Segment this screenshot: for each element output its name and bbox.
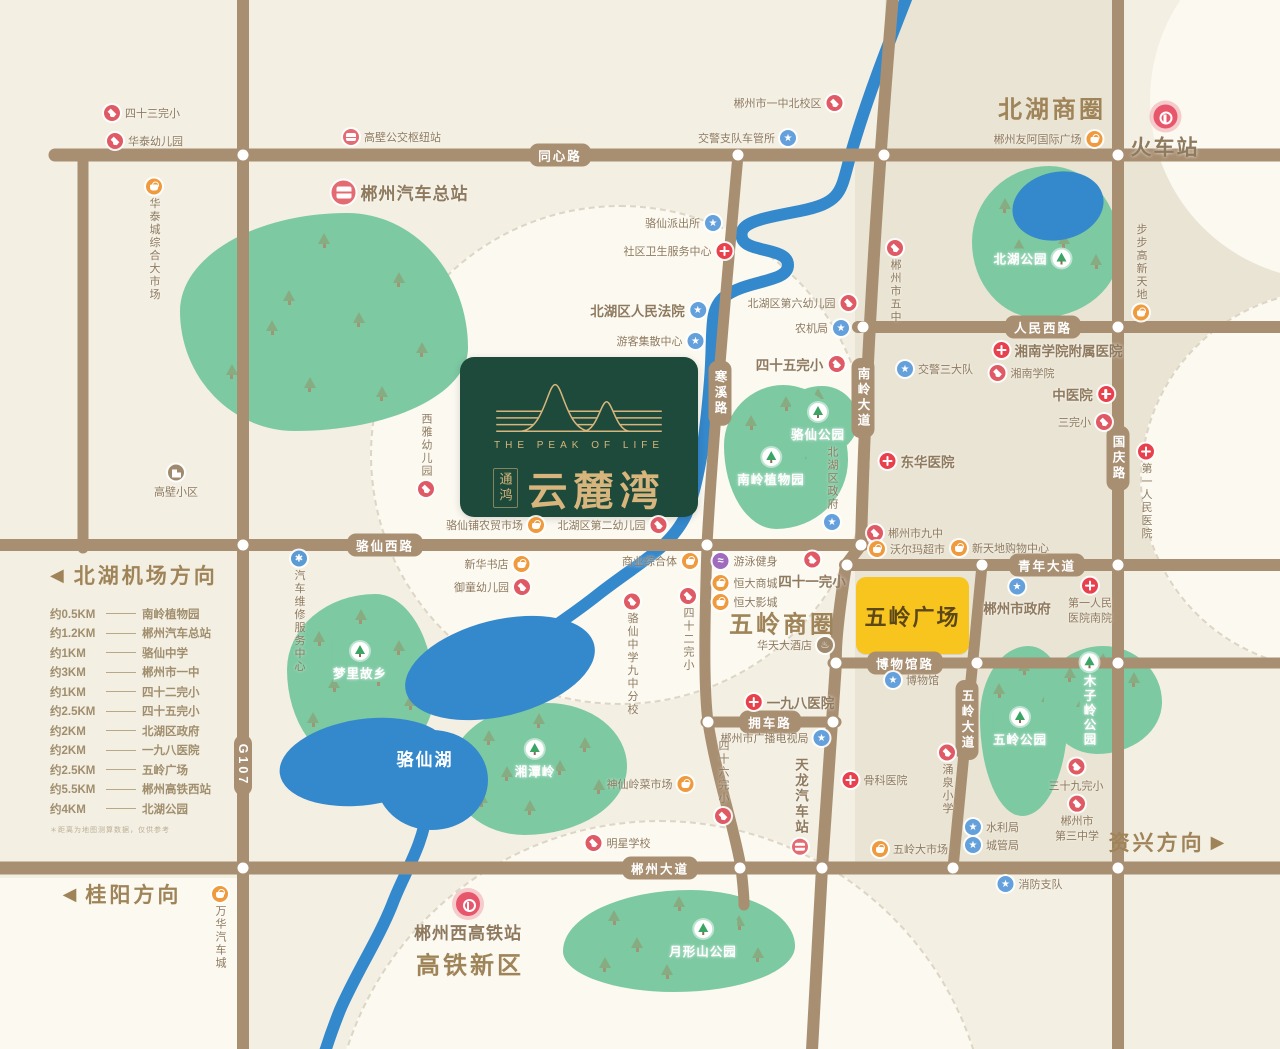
tree-icon	[526, 740, 544, 758]
poi-label: 高壁公交枢纽站	[364, 129, 441, 145]
poi: 交警支队车管所	[698, 130, 796, 146]
school-icon	[1096, 414, 1112, 430]
poi-label: 涌泉小学	[939, 764, 955, 816]
shop-icon	[146, 179, 162, 195]
distance-km: 约1.2KM	[50, 625, 106, 641]
home-icon	[168, 465, 184, 481]
hosp-icon	[717, 243, 733, 259]
poi-label: 郴州市 第三中学	[1055, 815, 1099, 845]
area-label: 资兴方向▶	[1109, 827, 1228, 857]
poi-label: 游客集散中心	[617, 333, 683, 349]
poi-label: 郴州友阿国际广场	[994, 131, 1082, 147]
poi-label: 新华书店	[465, 556, 509, 572]
poi-label: 郴州市政府	[983, 598, 1051, 618]
hosp-icon	[994, 342, 1010, 358]
mountain-lines-icon	[484, 377, 674, 436]
poi-label: 新天地购物中心	[972, 540, 1049, 556]
tree-icon	[1011, 708, 1029, 726]
poi: 西雅幼儿园	[418, 413, 434, 497]
poi: 天龙汽车站	[790, 758, 810, 855]
tree-icon	[694, 920, 712, 938]
poi: 交警三大队	[897, 361, 973, 377]
school-icon	[867, 525, 883, 541]
poi: 郴州西高铁站	[414, 892, 522, 944]
area-label-text: 北湖商圈	[998, 90, 1106, 125]
bus-icon	[332, 180, 356, 204]
poi-label: 四十三完小	[125, 105, 180, 121]
distance-dash	[106, 633, 136, 634]
poi: 万华汽车城	[212, 886, 228, 970]
left-arrow-icon: ◀	[50, 565, 67, 586]
school-icon	[939, 745, 955, 761]
poi-label: 南岭植物园	[737, 469, 805, 488]
poi: 骆仙派出所	[645, 215, 721, 231]
distance-km: 约2KM	[50, 723, 106, 739]
poi: 月形山公园	[669, 920, 737, 960]
poi: 华泰城综合大市场	[146, 179, 162, 302]
poi-label: 骆仙中学九中分校	[624, 613, 640, 717]
poi-label: 月形山公园	[669, 941, 737, 960]
poi-label: 骆仙铺农贸市场	[446, 517, 523, 533]
road-label: 郴州大道	[622, 857, 698, 880]
poi: 郴州市广播电视局	[721, 730, 830, 746]
gov-icon	[780, 130, 796, 146]
distance-dash	[106, 613, 136, 614]
poi: 消防支队	[998, 876, 1063, 892]
school-icon	[651, 517, 667, 533]
bus-icon	[792, 838, 808, 854]
poi: 郴州市九中	[867, 525, 943, 541]
distance-panel: ◀ 北湖机场方向 约0.5KM南岭植物园约1.2KM郴州汽车总站约1KM骆仙中学…	[50, 560, 240, 835]
distance-name: 五岭广场	[142, 762, 188, 778]
hosp-icon	[843, 772, 859, 788]
poi-label: 中医院	[1052, 384, 1093, 404]
poi-label: 火车站	[1131, 132, 1200, 162]
poi: 社区卫生服务中心	[624, 243, 733, 259]
poi-label: 恒大影城	[734, 594, 778, 610]
poi-label: 水利局	[986, 819, 1019, 835]
poi-label: 北湖区第六幼儿园	[748, 295, 836, 311]
poi: 骆仙铺农贸市场	[446, 517, 544, 533]
poi: 步步高新天地	[1133, 224, 1149, 321]
poi: 郴州友阿国际广场	[994, 131, 1103, 147]
poi: 四十三完小	[104, 105, 180, 121]
poi-label: 北湖区第二幼儿园	[558, 517, 646, 533]
gov-icon	[965, 819, 981, 835]
distance-km: 约2.5KM	[50, 762, 106, 778]
distance-dash	[106, 711, 136, 712]
left-arrow-icon: ◀	[63, 884, 80, 905]
poi-label: 骨科医院	[864, 772, 908, 788]
tree-icon	[762, 448, 780, 466]
shop-icon	[678, 776, 694, 792]
poi: 三十九完小	[1049, 759, 1104, 794]
distance-row: 约3KM郴州市一中	[50, 663, 240, 683]
shop-icon	[212, 886, 228, 902]
poi: 华泰幼儿园	[107, 133, 183, 149]
school-icon	[1068, 759, 1084, 775]
poi-label: 一九八医院	[767, 692, 835, 712]
road-label: 五岭大道	[956, 680, 979, 760]
poi-label: 沃尔玛超市	[890, 541, 945, 557]
distance-km: 约4KM	[50, 801, 106, 817]
school-icon	[828, 356, 844, 372]
distance-dash	[106, 750, 136, 751]
fix-icon	[291, 551, 307, 567]
poi-label: 郴州市广播电视局	[721, 730, 809, 746]
school-icon	[586, 835, 602, 851]
poi-label: 四十五完小	[756, 354, 824, 374]
gov-icon	[897, 361, 913, 377]
distance-dash	[106, 691, 136, 692]
school-icon	[107, 133, 123, 149]
poi: 游客集散中心	[617, 333, 704, 349]
poi: 一九八医院	[746, 692, 835, 712]
school-icon	[827, 95, 843, 111]
gov-icon	[833, 320, 849, 336]
poi: 华天大酒店	[757, 637, 833, 653]
poi: 恒大商城	[713, 575, 778, 591]
poi-label: 交警支队车管所	[698, 130, 775, 146]
poi: 新天地购物中心	[951, 540, 1049, 556]
road-label: 骆仙西路	[347, 534, 423, 557]
poi-label: 社区卫生服务中心	[624, 243, 712, 259]
gov-icon	[1009, 579, 1025, 595]
poi-label: 西雅幼儿园	[418, 413, 434, 478]
poi-label: 华天大酒店	[757, 637, 812, 653]
school-icon	[804, 552, 820, 568]
hosp-icon	[1098, 386, 1114, 402]
poi: 湘南学院	[990, 365, 1055, 381]
tree-icon	[1053, 249, 1071, 267]
poi-label: 郴州市九中	[888, 525, 943, 541]
rail-icon	[1153, 105, 1177, 129]
road-label: 青年大道	[1009, 554, 1085, 577]
poi-label: 四十一完小	[778, 571, 846, 591]
poi-label: 天龙汽车站	[790, 758, 810, 836]
poi: 明星学校	[586, 835, 651, 851]
poi-label: 消防支队	[1019, 876, 1063, 892]
poi-label: 五岭大市场	[893, 841, 948, 857]
poi: 北湖区政府	[824, 446, 840, 530]
poi-label: 北湖区人民法院	[590, 300, 685, 320]
swim-icon	[713, 553, 729, 569]
area-label: 骆仙湖	[397, 746, 454, 771]
distance-km: 约3KM	[50, 664, 106, 680]
poi: 城管局	[965, 837, 1019, 853]
poi: 北湖公园	[993, 249, 1070, 268]
poi-label: 城管局	[986, 837, 1019, 853]
poi-label: 骆仙公园	[791, 424, 845, 443]
poi-label: 农机局	[795, 320, 828, 336]
distance-panel-title-text: 北湖机场方向	[74, 560, 218, 590]
distance-dash	[106, 652, 136, 653]
poi: 郴州市一中北校区	[734, 95, 843, 111]
distance-km: 约1KM	[50, 645, 106, 661]
poi: 北湖区第二幼儿园	[558, 517, 667, 533]
school-icon	[1069, 796, 1085, 812]
poi: 北湖区第六幼儿园	[748, 295, 857, 311]
poi-label: 四十二完小	[680, 607, 696, 672]
poi-label: 四十六完小	[715, 740, 731, 805]
school-icon	[841, 295, 857, 311]
area-label-text: 高铁新区	[416, 946, 524, 981]
location-map: 五岭广场 THE PEAK OF LIFE 通鸿 云麓湾 ◀ 北湖机场方向 约0…	[0, 0, 1280, 1049]
poi: 中医院	[1052, 384, 1114, 404]
poi: 郴州市 第三中学	[1055, 796, 1099, 845]
road-label: 同心路	[529, 144, 591, 167]
poi-label: 御童幼儿园	[454, 579, 509, 595]
poi: 四十一完小	[778, 552, 846, 591]
poi: 四十二完小	[680, 588, 696, 672]
poi: 沃尔玛超市	[869, 541, 945, 557]
distance-row: 约1KM骆仙中学	[50, 643, 240, 663]
poi-label: 郴州汽车总站	[361, 180, 469, 205]
poi-label: 汽车维修服务中心	[291, 570, 307, 674]
poi-label: 北湖公园	[993, 249, 1047, 268]
distance-km: 约2KM	[50, 742, 106, 758]
gov-icon	[705, 215, 721, 231]
gov-icon	[814, 730, 830, 746]
distance-km: 约1KM	[50, 684, 106, 700]
school-icon	[514, 579, 530, 595]
distance-name: 北湖公园	[142, 801, 188, 817]
bus-icon	[343, 129, 359, 145]
poi-label: 华泰幼儿园	[128, 133, 183, 149]
school-icon	[680, 588, 696, 604]
distance-row: 约1.2KM郴州汽车总站	[50, 624, 240, 644]
road-label: 人民西路	[1005, 316, 1081, 339]
poi: 御童幼儿园	[454, 579, 530, 595]
shop-icon	[1087, 131, 1103, 147]
poi: 北湖区人民法院	[590, 300, 706, 320]
poi-label: 恒大商城	[734, 575, 778, 591]
poi-label: 三完小	[1058, 414, 1091, 430]
poi: 郴州汽车总站	[332, 180, 469, 205]
tree-icon	[351, 642, 369, 660]
distance-name: 一九八医院	[142, 742, 200, 758]
gov-icon	[690, 302, 706, 318]
poi-label: 华泰城综合大市场	[146, 198, 162, 302]
poi-label: 游泳健身	[734, 553, 778, 569]
gov-icon	[688, 333, 704, 349]
distance-note: ＊距离为地图测算数据，仅供参考	[50, 825, 240, 835]
gov-icon	[998, 876, 1014, 892]
road-label: 南岭大道	[852, 358, 875, 438]
poi: 骆仙公园	[791, 403, 845, 443]
poi-label: 郴州市一中北校区	[734, 95, 822, 111]
poi: 游泳健身	[713, 553, 778, 569]
right-arrow-icon: ▶	[1211, 832, 1228, 853]
poi: 农机局	[795, 320, 849, 336]
logo-project-name: 云麓湾	[528, 459, 666, 517]
rail-icon	[456, 892, 480, 916]
poi-label: 三十九完小	[1049, 778, 1104, 794]
distance-dash	[106, 730, 136, 731]
poi-label: 明星学校	[607, 835, 651, 851]
tree-icon	[1080, 653, 1098, 671]
distance-row: 约2.5KM四十五完小	[50, 702, 240, 722]
area-label: ◀桂阳方向	[63, 879, 182, 909]
distance-row: 约5.5KM郴州高铁西站	[50, 780, 240, 800]
project-logo-card: THE PEAK OF LIFE 通鸿 云麓湾	[460, 357, 698, 517]
poi-label: 郴州市五中	[887, 259, 903, 324]
distance-km: 约0.5KM	[50, 606, 106, 622]
poi: 三完小	[1058, 414, 1112, 430]
poi: 火车站	[1131, 105, 1200, 162]
distance-name: 郴州市一中	[142, 664, 200, 680]
distance-rows: 约0.5KM南岭植物园约1.2KM郴州汽车总站约1KM骆仙中学约3KM郴州市一中…	[50, 604, 240, 819]
poi: 骆仙中学九中分校	[624, 594, 640, 717]
poi: 新华书店	[465, 556, 530, 572]
road-label: G107	[234, 735, 252, 796]
logo-brand: 通鸿	[493, 468, 518, 508]
poi-label: 第一人民 医院南院	[1068, 597, 1112, 627]
poi-label: 万华汽车城	[212, 905, 228, 970]
poi-label: 五岭公园	[993, 729, 1047, 748]
poi: 博物馆	[885, 672, 939, 688]
poi: 木子岭公园	[1080, 653, 1099, 747]
tree-icon	[809, 403, 827, 421]
poi: 梦里故乡	[333, 642, 387, 682]
hosp-icon	[746, 694, 762, 710]
distance-name: 南岭植物园	[142, 606, 200, 622]
poi-label: 东华医院	[901, 451, 955, 471]
gov-icon	[885, 672, 901, 688]
distance-row: 约2.5KM五岭广场	[50, 760, 240, 780]
poi-label: 湘南学院附属医院	[1015, 340, 1123, 360]
distance-km: 约5.5KM	[50, 781, 106, 797]
school-icon	[418, 481, 434, 497]
poi: 神仙岭菜市场	[607, 776, 694, 792]
poi-label: 郴州西高铁站	[414, 919, 522, 944]
shop-icon	[1133, 305, 1149, 321]
poi: 高壁公交枢纽站	[343, 129, 441, 145]
gov-icon	[965, 837, 981, 853]
poi: 郴州市政府	[983, 579, 1051, 618]
hosp-icon	[1138, 444, 1154, 460]
shop-icon	[869, 541, 885, 557]
wuling-plaza-highlight: 五岭广场	[856, 577, 969, 654]
shop-icon	[682, 553, 698, 569]
gov-icon	[824, 514, 840, 530]
distance-name: 郴州汽车总站	[142, 625, 211, 641]
hosp-icon	[1082, 578, 1098, 594]
distance-name: 骆仙中学	[142, 645, 188, 661]
poi-label: 北湖区政府	[824, 446, 840, 511]
poi: 五岭大市场	[872, 841, 948, 857]
road-label: 国庆路	[1107, 426, 1130, 491]
area-label: 北湖商圈	[998, 90, 1106, 125]
distance-dash	[106, 769, 136, 770]
school-icon	[104, 105, 120, 121]
shop-icon	[514, 556, 530, 572]
poi-label: 神仙岭菜市场	[607, 776, 673, 792]
road-label: 寒溪路	[709, 361, 732, 426]
distance-name: 四十二完小	[142, 684, 200, 700]
poi: 涌泉小学	[939, 745, 955, 816]
area-label: 高铁新区	[416, 946, 524, 981]
school-icon	[624, 594, 640, 610]
school-icon	[715, 808, 731, 824]
distance-name: 郴州高铁西站	[142, 781, 211, 797]
poi: 第一人民医院	[1138, 444, 1154, 541]
distance-row: 约1KM四十二完小	[50, 682, 240, 702]
poi: 水利局	[965, 819, 1019, 835]
poi-label: 骆仙派出所	[645, 215, 700, 231]
area-label-text: 骆仙湖	[397, 746, 454, 771]
poi-label: 高壁小区	[154, 484, 198, 500]
distance-dash	[106, 789, 136, 790]
poi: 五岭公园	[993, 708, 1047, 748]
hosp-icon	[880, 453, 896, 469]
shop-icon	[951, 540, 967, 556]
school-icon	[990, 365, 1006, 381]
poi-label: 第一人民医院	[1138, 463, 1154, 541]
poi: 南岭植物园	[737, 448, 805, 488]
poi: 恒大影城	[713, 594, 778, 610]
distance-row: 约2KM北湖区政府	[50, 721, 240, 741]
poi-label: 交警三大队	[918, 361, 973, 377]
poi-label: 商业综合体	[622, 553, 677, 569]
poi-label: 博物馆	[906, 672, 939, 688]
poi: 四十六完小	[715, 740, 731, 824]
shop-icon	[713, 575, 729, 591]
shop-icon	[872, 841, 888, 857]
poi: 汽车维修服务中心	[291, 551, 307, 674]
distance-dash	[106, 672, 136, 673]
distance-row: 约4KM北湖公园	[50, 799, 240, 819]
area-label-text: 资兴方向	[1109, 827, 1205, 857]
poi: 湘南学院附属医院	[994, 340, 1123, 360]
poi-label: 湘南学院	[1011, 365, 1055, 381]
poi-label: 梦里故乡	[333, 663, 387, 682]
poi: 第一人民 医院南院	[1068, 578, 1112, 627]
distance-row: 约2KM一九八医院	[50, 741, 240, 761]
shop-icon	[713, 594, 729, 610]
poi-label: 步步高新天地	[1133, 224, 1149, 302]
poi: 商业综合体	[622, 553, 698, 569]
poi: 四十五完小	[756, 354, 845, 374]
shop-icon	[528, 517, 544, 533]
poi-label: 湘潭岭	[515, 761, 556, 780]
poi: 骨科医院	[843, 772, 908, 788]
distance-dash	[106, 808, 136, 809]
distance-row: 约0.5KM南岭植物园	[50, 604, 240, 624]
school-icon	[887, 240, 903, 256]
distance-name: 四十五完小	[142, 703, 200, 719]
poi: 高壁小区	[154, 465, 198, 500]
poi: 东华医院	[880, 451, 955, 471]
distance-panel-title: ◀ 北湖机场方向	[50, 560, 240, 590]
area-label-text: 桂阳方向	[85, 879, 181, 909]
hotel-icon	[817, 637, 833, 653]
poi-label: 木子岭公园	[1080, 674, 1099, 747]
poi: 湘潭岭	[515, 740, 556, 780]
poi: 郴州市五中	[887, 240, 903, 324]
logo-slogan: THE PEAK OF LIFE	[494, 440, 664, 451]
distance-name: 北湖区政府	[142, 723, 200, 739]
distance-km: 约2.5KM	[50, 703, 106, 719]
